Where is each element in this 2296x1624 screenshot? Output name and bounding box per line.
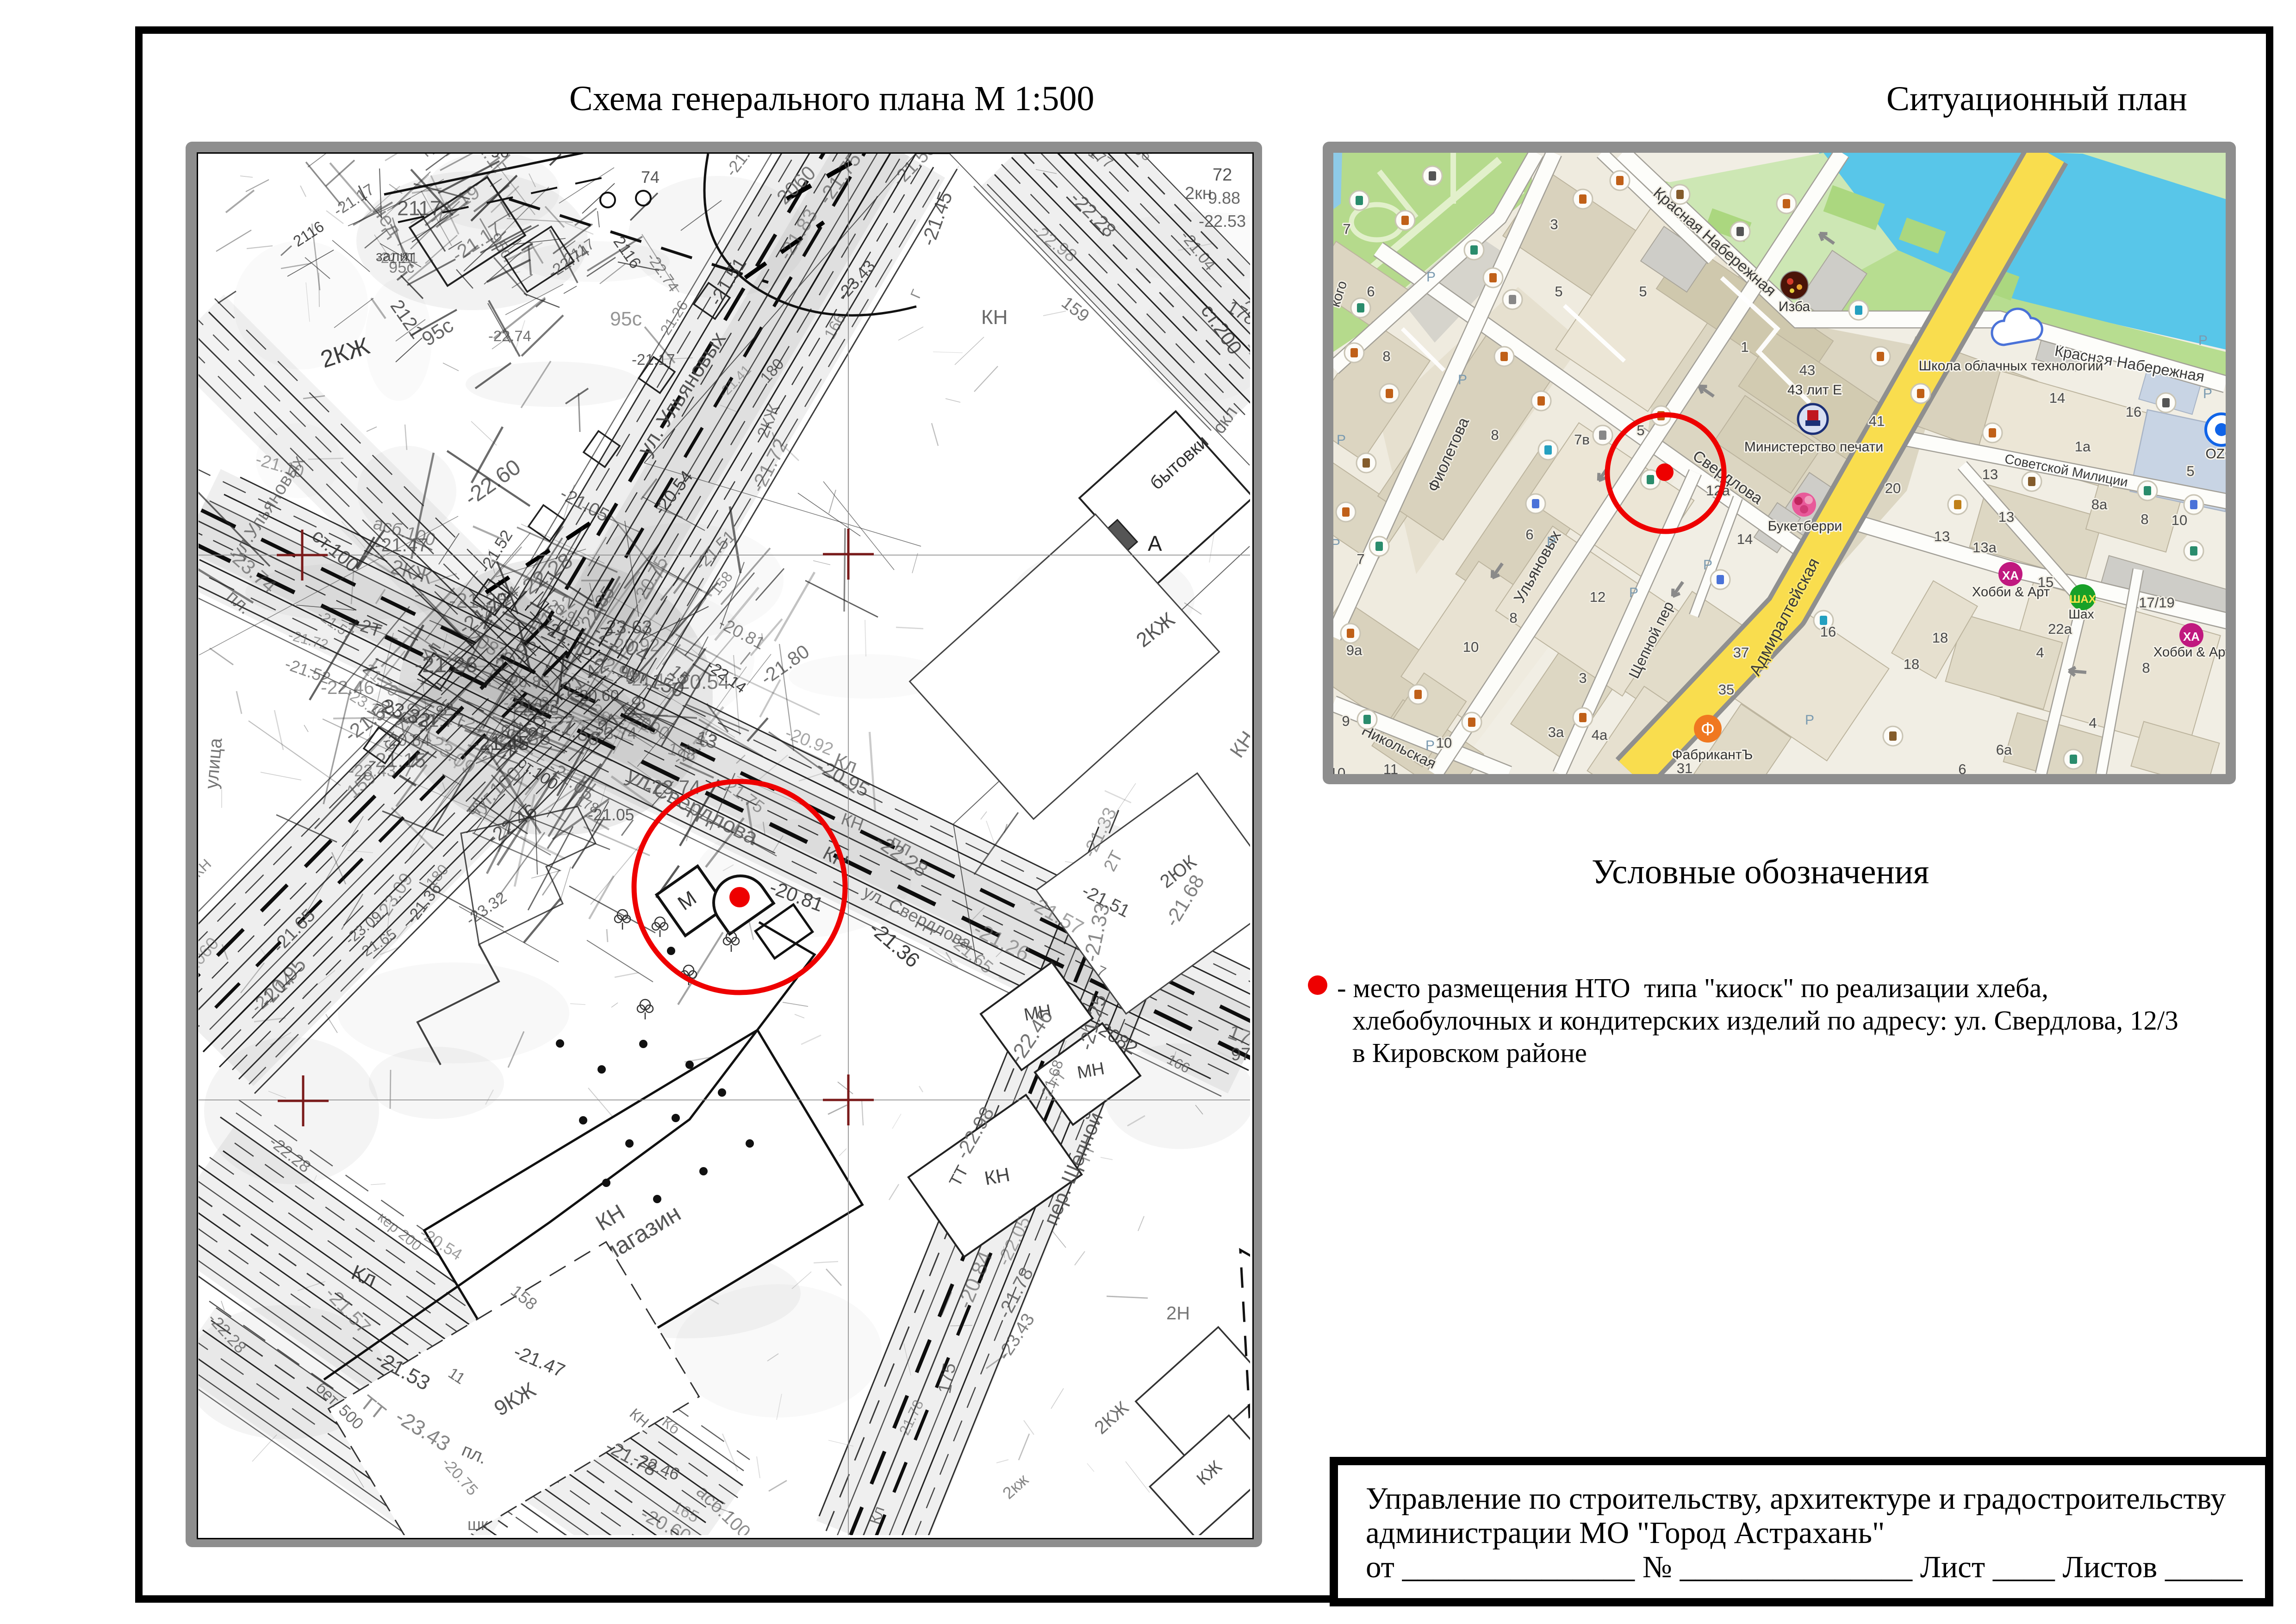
svg-text:-23.43: -23.43 — [348, 761, 396, 780]
svg-text:Ф: Ф — [1701, 719, 1715, 739]
svg-text:10: 10 — [2172, 512, 2187, 528]
svg-text:-20.60: -20.60 — [574, 687, 619, 705]
svg-text:74: 74 — [641, 168, 660, 187]
svg-text:-23.63: -23.63 — [600, 617, 652, 637]
svg-text:P: P — [1805, 712, 1814, 728]
svg-text:7в: 7в — [1574, 431, 1590, 448]
svg-text:P: P — [2203, 386, 2212, 401]
svg-text:P: P — [1333, 537, 1340, 552]
svg-text:6: 6 — [1367, 283, 1375, 300]
svg-text:-21.77: -21.77 — [412, 710, 465, 731]
svg-text:Школа облачных технологий: Школа облачных технологий — [1919, 358, 2103, 374]
svg-text:12: 12 — [1590, 589, 1605, 605]
svg-text:4а: 4а — [1592, 727, 1608, 743]
svg-text:-22.74: -22.74 — [488, 327, 531, 344]
svg-text:2Н: 2Н — [1166, 1303, 1190, 1324]
svg-text:P: P — [1425, 738, 1435, 753]
svg-text:8: 8 — [1491, 427, 1499, 443]
svg-text:17/19: 17/19 — [2139, 594, 2175, 611]
svg-text:43 лит Е: 43 лит Е — [1787, 382, 1842, 398]
svg-text:-20.54: -20.54 — [672, 671, 729, 693]
svg-text:Изба: Изба — [1779, 299, 1810, 314]
svg-text:КН: КН — [983, 1163, 1011, 1189]
svg-text:OZO: OZO — [2206, 446, 2226, 462]
svg-text:5: 5 — [2186, 463, 2194, 479]
svg-text:P: P — [1458, 372, 1467, 387]
svg-text:37: 37 — [1733, 644, 1749, 661]
svg-text:8: 8 — [1382, 348, 1390, 364]
svg-text:95с: 95с — [610, 308, 642, 330]
svg-text:11: 11 — [1383, 761, 1398, 774]
svg-text:18: 18 — [1932, 630, 1948, 646]
svg-text:13: 13 — [1982, 466, 1998, 482]
svg-text:ШАХ: ШАХ — [2069, 593, 2096, 606]
svg-text:9: 9 — [1342, 713, 1350, 729]
svg-text:10: 10 — [1436, 735, 1452, 751]
svg-text:13: 13 — [1934, 528, 1950, 544]
svg-text:-21.47: -21.47 — [375, 534, 428, 556]
svg-text:ХА: ХА — [2002, 568, 2019, 582]
svg-text:Хобби & Арт: Хобби & Арт — [2153, 645, 2226, 660]
svg-text:10: 10 — [1463, 639, 1479, 655]
svg-text:5: 5 — [1555, 283, 1562, 300]
svg-text:41: 41 — [1869, 413, 1885, 429]
svg-text:КН: КН — [981, 306, 1008, 329]
svg-text:8: 8 — [1509, 610, 1517, 626]
svg-text:13а: 13а — [1972, 539, 1997, 556]
svg-text:9.88: 9.88 — [1208, 188, 1240, 207]
svg-text:6: 6 — [1958, 761, 1966, 774]
svg-text:6: 6 — [1525, 526, 1533, 543]
svg-text:10: 10 — [1333, 765, 1345, 774]
svg-text:35: 35 — [1718, 681, 1734, 698]
svg-text:20: 20 — [1885, 480, 1901, 496]
svg-text:97: 97 — [1231, 1045, 1250, 1064]
svg-text:22а: 22а — [2048, 621, 2072, 637]
svg-text:-21.17: -21.17 — [632, 351, 675, 368]
svg-text:-20.84: -20.84 — [383, 731, 430, 750]
svg-text:4: 4 — [2036, 644, 2044, 661]
svg-text:3: 3 — [1550, 216, 1558, 232]
svg-text:95с: 95с — [389, 259, 415, 276]
svg-text:-21.30: -21.30 — [514, 701, 559, 719]
svg-text:P: P — [1426, 269, 1436, 285]
svg-text:16: 16 — [2126, 404, 2141, 420]
svg-text:8: 8 — [2142, 660, 2150, 676]
svg-text:96: 96 — [491, 154, 509, 161]
svg-text:31: 31 — [1677, 760, 1692, 774]
svg-text:8а: 8а — [2091, 496, 2108, 512]
svg-text:P: P — [2198, 333, 2208, 348]
svg-text:P: P — [1547, 534, 1556, 550]
svg-text:9а: 9а — [1346, 642, 1363, 658]
svg-text:16: 16 — [1820, 624, 1836, 640]
svg-text:P: P — [1629, 585, 1638, 600]
svg-text:18: 18 — [1904, 656, 1919, 672]
svg-text:шк: шк — [467, 1515, 488, 1534]
svg-text:15: 15 — [2038, 574, 2053, 590]
svg-text:5: 5 — [1639, 283, 1647, 300]
svg-text:-21.26: -21.26 — [415, 653, 478, 677]
svg-text:P: P — [1337, 432, 1346, 448]
svg-text:1: 1 — [1741, 339, 1748, 355]
svg-text:Министерство печати: Министерство печати — [1744, 439, 1883, 455]
svg-text:-20.85: -20.85 — [504, 673, 550, 691]
svg-text:-22.53: -22.53 — [1199, 212, 1246, 231]
svg-text:3: 3 — [1579, 670, 1587, 686]
svg-text:14: 14 — [1737, 531, 1753, 547]
svg-text:13: 13 — [1998, 509, 2014, 525]
svg-text:Шах: Шах — [2068, 607, 2094, 621]
svg-text:7: 7 — [1356, 551, 1364, 567]
svg-text:3а: 3а — [1548, 724, 1564, 740]
svg-text:72: 72 — [1213, 165, 1232, 185]
svg-text:ХА: ХА — [2183, 630, 2200, 643]
svg-text:-20.92: -20.92 — [608, 635, 660, 656]
svg-text:-22.46: -22.46 — [321, 677, 374, 698]
svg-text:-21.12: -21.12 — [626, 670, 676, 690]
svg-text:43: 43 — [1799, 362, 1815, 378]
svg-text:А: А — [1148, 531, 1162, 556]
svg-text:8: 8 — [2140, 511, 2148, 527]
svg-text:Букетберри: Букетберри — [1768, 518, 1842, 534]
svg-text:4: 4 — [2089, 715, 2097, 731]
svg-text:14: 14 — [2049, 390, 2065, 406]
svg-text:-21.05: -21.05 — [588, 806, 634, 824]
svg-text:P: P — [1703, 557, 1712, 573]
svg-text:1а: 1а — [2075, 438, 2091, 455]
svg-text:6а: 6а — [1996, 742, 2012, 758]
svg-text:7: 7 — [1343, 221, 1350, 237]
